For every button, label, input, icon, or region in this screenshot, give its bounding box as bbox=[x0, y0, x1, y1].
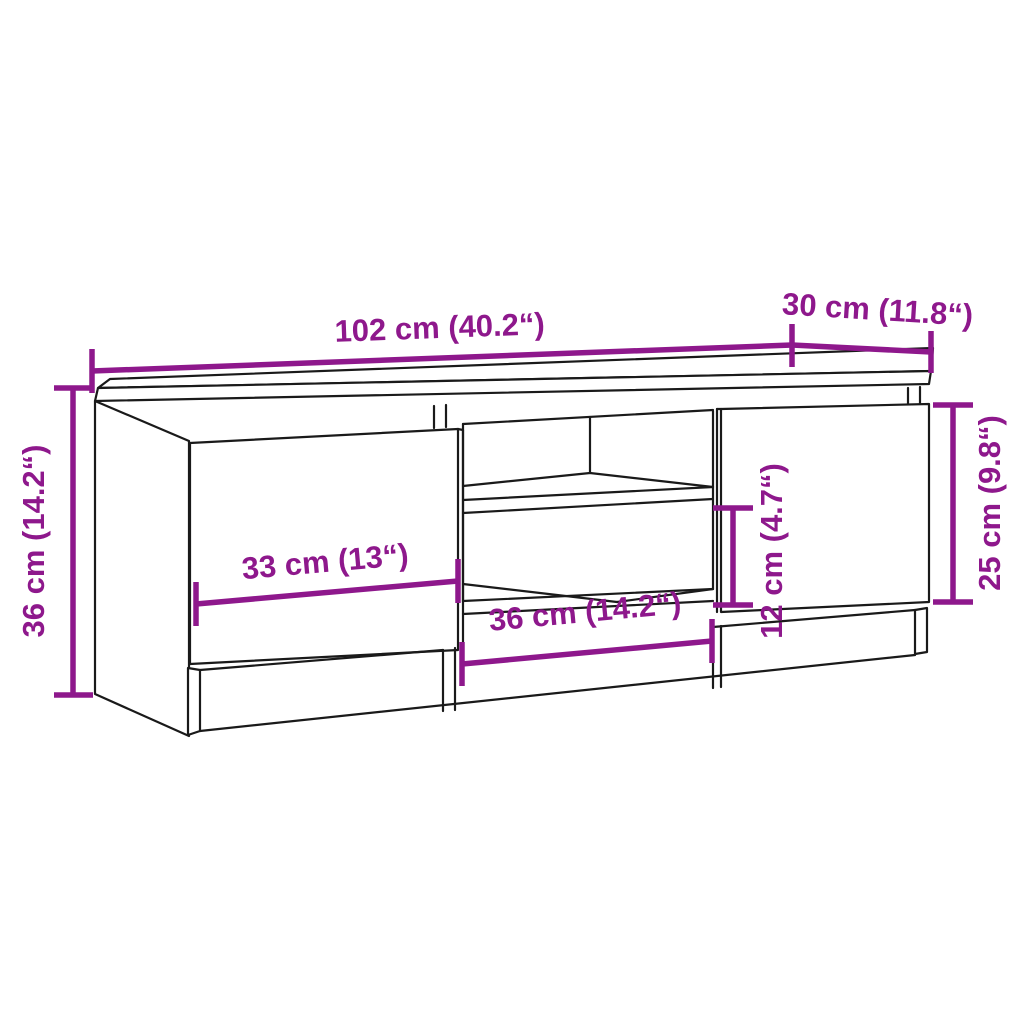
dimension-overall-height: 36 cm (14.2“) bbox=[16, 388, 93, 695]
dimension-right-door-height: 25 cm (9.8“) bbox=[933, 405, 1007, 602]
dimension-diagram-page: 102 cm (40.2“) 30 cm (11.8“) 36 cm (14.2… bbox=[0, 0, 1024, 1024]
dim-label-middle-width: 36 cm (14.2“) bbox=[487, 585, 682, 638]
dim-label-overall-height: 36 cm (14.2“) bbox=[16, 445, 51, 638]
cabinet-side-panel-left bbox=[95, 401, 189, 736]
tv-cabinet-dimension-diagram: 102 cm (40.2“) 30 cm (11.8“) 36 cm (14.2… bbox=[0, 0, 1024, 1024]
cabinet-drawing bbox=[95, 348, 933, 736]
dim-label-depth: 30 cm (11.8“) bbox=[781, 286, 974, 333]
dim-label-overall-width: 102 cm (40.2“) bbox=[334, 306, 545, 349]
middle-shelf bbox=[463, 473, 713, 513]
middle-compartment bbox=[463, 410, 713, 614]
dim-label-shelf-gap-height: 12 cm (4.7“) bbox=[754, 463, 789, 639]
dim-label-right-door-height: 25 cm (9.8“) bbox=[972, 415, 1007, 591]
